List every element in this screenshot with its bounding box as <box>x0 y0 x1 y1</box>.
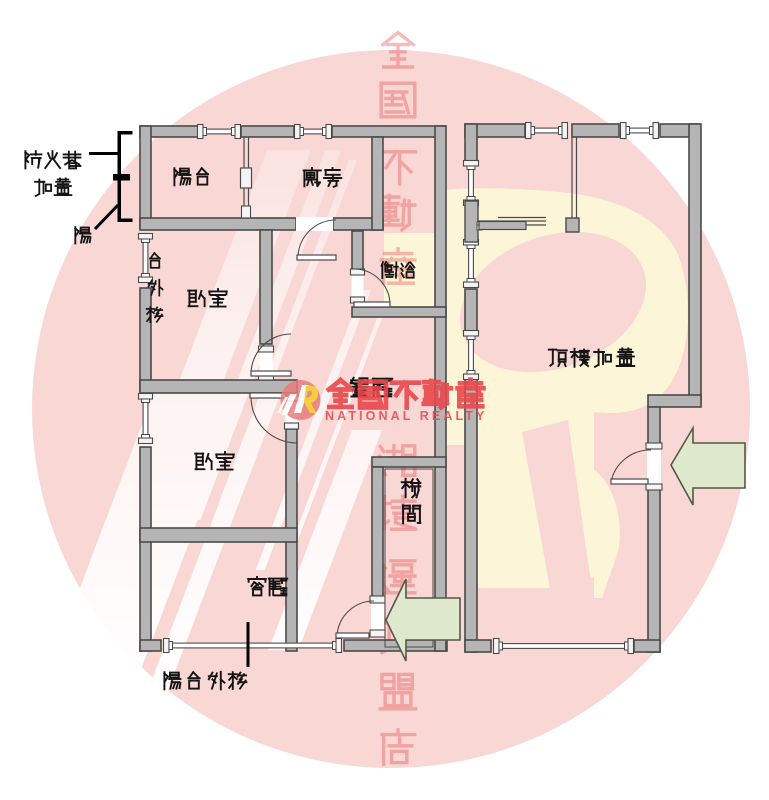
svg-text:NATIONAL REALTY: NATIONAL REALTY <box>325 409 487 423</box>
